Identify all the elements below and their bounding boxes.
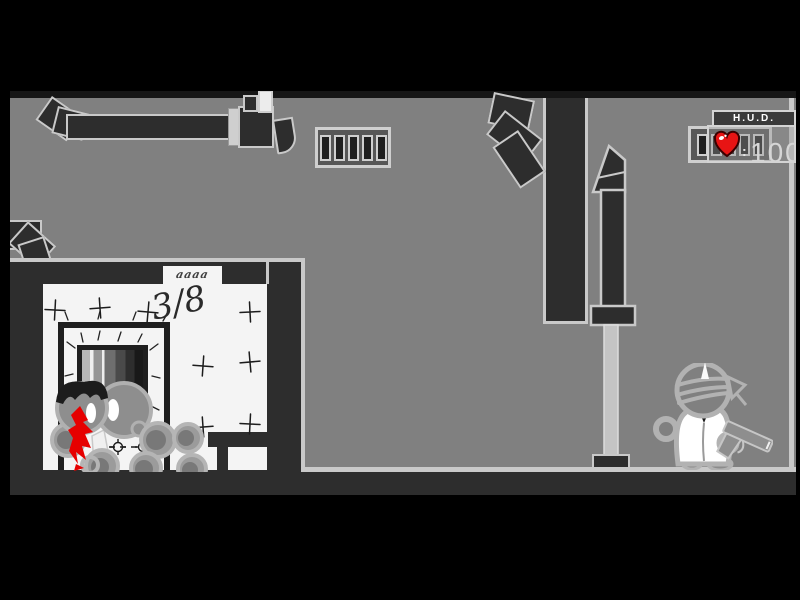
wall-pipe-assembly bbox=[585, 140, 645, 470]
frame-right bbox=[796, 0, 800, 600]
vent-grille-left bbox=[315, 127, 391, 168]
duct-riser-light bbox=[258, 90, 273, 113]
duct-riser-dark bbox=[243, 95, 258, 112]
lintel-highlight bbox=[10, 258, 303, 262]
frame-top bbox=[0, 0, 800, 91]
lintel-divider bbox=[266, 262, 269, 284]
vent-slot bbox=[376, 135, 387, 161]
duct-horizontal-pipe bbox=[66, 114, 236, 140]
pole-base bbox=[593, 455, 629, 468]
hud-health-value: 100 bbox=[750, 139, 796, 163]
frame-bottom bbox=[0, 495, 800, 600]
vent-slot bbox=[320, 135, 331, 161]
left-hand bbox=[656, 419, 676, 439]
heart-icon bbox=[712, 129, 742, 159]
cell-right-wall-highlight bbox=[301, 258, 305, 472]
hud-title: H.U.D. bbox=[733, 113, 775, 124]
ceiling-shadow-line bbox=[0, 91, 800, 98]
frame-left bbox=[0, 0, 10, 600]
game-stage[interactable]: aaaa bbox=[0, 0, 800, 600]
vent-slot bbox=[348, 135, 359, 161]
below-floor-band bbox=[303, 472, 796, 495]
vent-slot bbox=[334, 135, 345, 161]
hud-health-separator: : bbox=[742, 143, 747, 159]
hud-health-panel: : 100 bbox=[707, 125, 796, 163]
floor-pole bbox=[604, 325, 618, 457]
vent-slot bbox=[697, 134, 708, 156]
body-pile[interactable] bbox=[40, 368, 225, 472]
enemy-agent[interactable] bbox=[648, 363, 773, 470]
vent-slot bbox=[362, 135, 373, 161]
wall-column bbox=[543, 98, 588, 324]
